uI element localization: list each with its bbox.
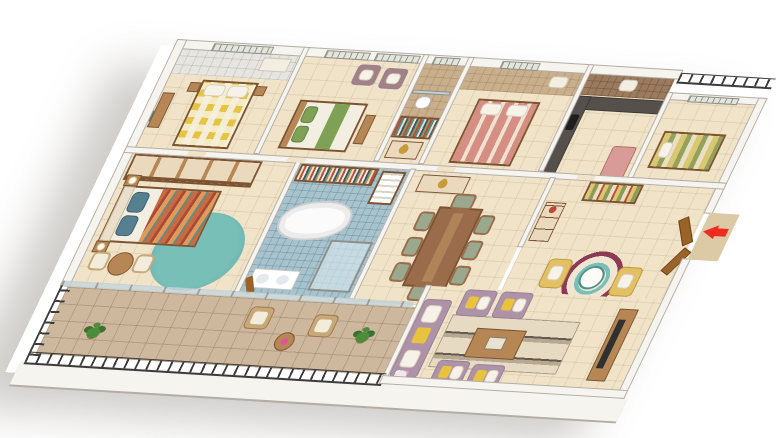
floor-plan-stage: [0, 0, 780, 438]
apartment-plan: [25, 40, 777, 398]
dining-chair: [452, 195, 476, 208]
toilet: [414, 97, 432, 109]
utility-basin: [618, 80, 638, 91]
bed-green: [280, 102, 365, 151]
armchair-mauve: [351, 65, 381, 85]
armchair-mauve: [492, 292, 534, 318]
bed-yellow: [175, 82, 257, 147]
gold-statue: [436, 179, 449, 188]
entry-door-panel: [679, 217, 692, 245]
dining-chair: [475, 217, 494, 233]
cushion: [421, 306, 442, 322]
dining-chair: [462, 242, 481, 258]
bedroom-chair: [89, 253, 110, 268]
potted-plant: [84, 327, 102, 339]
wicker-armchair: [243, 307, 275, 329]
tray: [485, 338, 506, 350]
armchair-mauve: [378, 69, 408, 89]
master-wardrobe: [126, 156, 260, 186]
pillow: [480, 104, 503, 115]
basin: [254, 273, 271, 283]
wardrobe-open-clothes: [392, 118, 437, 138]
ganesha-statue: [397, 145, 410, 154]
side-table: [272, 333, 297, 351]
flower-pot-pink: [279, 338, 289, 345]
cushion: [359, 70, 374, 79]
statue-dresser: [385, 141, 422, 158]
nightstand-lamp: [93, 241, 110, 251]
wash-basin: [548, 77, 569, 88]
armchair-mauve: [456, 290, 498, 316]
door-opening: [576, 175, 596, 181]
lamp: [97, 244, 106, 250]
red-bowl: [548, 206, 558, 213]
cushion: [249, 311, 269, 325]
dining-chair: [450, 268, 469, 284]
dry-balcony-railing: [676, 73, 776, 90]
twin-basins: [247, 269, 299, 289]
shower-partition: [413, 90, 450, 94]
nightstand: [254, 87, 267, 95]
green-runner: [314, 104, 350, 150]
pillow: [658, 143, 673, 157]
cushion: [617, 275, 634, 288]
wicker-armchair: [307, 315, 339, 337]
toiletries-shelf: [296, 166, 376, 184]
tv-screen: [596, 319, 626, 368]
cushion: [386, 74, 401, 83]
console-with-statue: [416, 175, 469, 193]
lamp: [128, 177, 137, 183]
door-opening: [286, 157, 306, 163]
window-blinds: [431, 57, 461, 66]
cushion-yellow: [411, 327, 432, 343]
cushion: [547, 266, 564, 279]
nightstand-lamp: [124, 175, 141, 185]
bathtub: [274, 202, 356, 240]
vanity-unit: [259, 58, 291, 71]
pillow: [203, 85, 226, 96]
potted-plant: [353, 332, 371, 344]
bed-pink: [451, 101, 538, 165]
basin: [274, 275, 291, 285]
door-opening: [436, 166, 456, 172]
nightstand: [188, 83, 201, 91]
cushion: [313, 319, 333, 333]
shoe-rack-striped: [584, 184, 641, 203]
round-table: [104, 253, 136, 276]
pillow: [506, 105, 529, 116]
entrance-arrow-icon: [713, 228, 729, 237]
cushion: [399, 351, 420, 367]
pillow: [226, 86, 249, 97]
mattress-striped: [650, 133, 724, 170]
door-opening: [186, 151, 206, 157]
